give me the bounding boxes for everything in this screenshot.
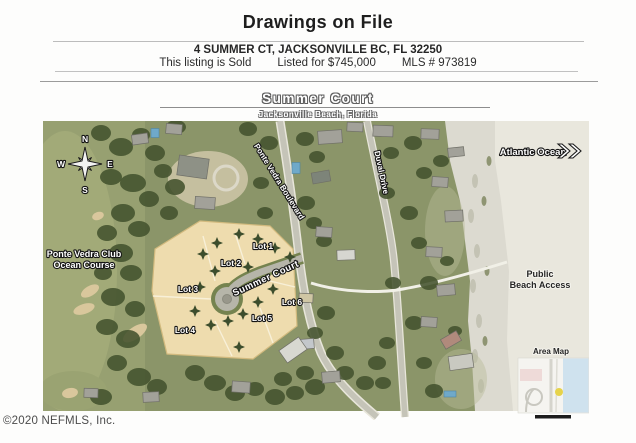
listing-address: 4 SUMMER CT, JACKSONVILLE BC, FL 32250 (0, 44, 636, 56)
inset-ocean (563, 359, 589, 413)
lot-5-label: Lot 5 (252, 313, 273, 323)
inset-road (556, 359, 557, 412)
listing-drawings-page: Drawings on File 4 SUMMER CT, JACKSONVIL… (0, 0, 636, 443)
scale-bar (535, 415, 571, 419)
lot-3-label: Lot 3 (178, 284, 199, 294)
lot-6-label: Lot 6 (282, 297, 303, 307)
area-map-label: Area Map (533, 347, 569, 356)
listing-status-row: This listing is Sold Listed for $745,000… (0, 57, 636, 69)
listing-mls-number: MLS # 973819 (402, 57, 477, 69)
inset-district (520, 369, 542, 381)
atlantic-ocean-label: Atlantic Ocean (500, 147, 567, 158)
compass-south-label: S (82, 185, 88, 195)
public-beach-access-label-line1: Public (526, 269, 553, 279)
listing-price: Listed for $745,000 (277, 57, 375, 69)
location-marker (555, 388, 563, 396)
map-title-underline (160, 107, 490, 108)
header-divider-middle (55, 71, 578, 72)
development-parcel (152, 221, 302, 359)
aerial-map: N S W E Ponte Vedra Club Ocean Course At… (43, 121, 589, 420)
map-title: Summer Court (0, 91, 636, 106)
area-map-inset (518, 358, 589, 413)
header-divider-top (53, 41, 584, 42)
golf-club-label-line1: Ponte Vedra Club (47, 249, 122, 259)
header-divider-bottom (40, 81, 598, 82)
compass-north-label: N (82, 134, 88, 144)
listing-status: This listing is Sold (159, 57, 251, 69)
map-subtitle: Jacksonville Beach, Florida (0, 110, 636, 119)
lot-4-label: Lot 4 (175, 325, 196, 335)
page-title: Drawings on File (0, 12, 636, 33)
golf-club-label-line2: Ocean Course (53, 260, 114, 270)
lot-1-label: Lot 1 (253, 241, 274, 251)
public-beach-access-label-line2: Beach Access (510, 280, 571, 290)
lot-2-label: Lot 2 (221, 258, 242, 268)
compass-west-label: W (57, 159, 66, 169)
copyright-text: ©2020 NEFMLS, Inc. (3, 415, 115, 427)
compass-east-label: E (107, 159, 113, 169)
